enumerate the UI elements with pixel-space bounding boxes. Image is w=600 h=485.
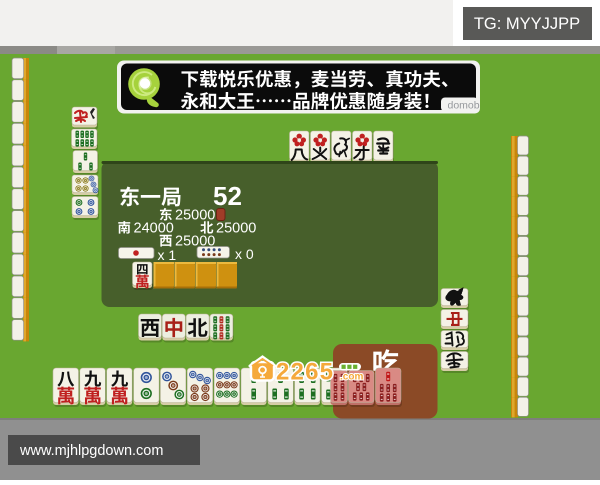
svg-text:25000: 25000 — [175, 208, 215, 224]
svg-text:24000: 24000 — [134, 221, 174, 237]
svg-text:x 0: x 0 — [235, 246, 254, 262]
svg-text:.com: .com — [340, 372, 363, 383]
svg-text:domob: domob — [448, 100, 480, 112]
svg-text:www.mjhlpgdown.com: www.mjhlpgdown.com — [19, 443, 163, 459]
svg-text:52: 52 — [213, 181, 242, 211]
svg-text:TG: MYYJJPP: TG: MYYJJPP — [474, 15, 580, 33]
svg-text:x 1: x 1 — [158, 247, 177, 263]
svg-text:2265: 2265 — [276, 359, 334, 386]
svg-text:25000: 25000 — [216, 221, 256, 237]
